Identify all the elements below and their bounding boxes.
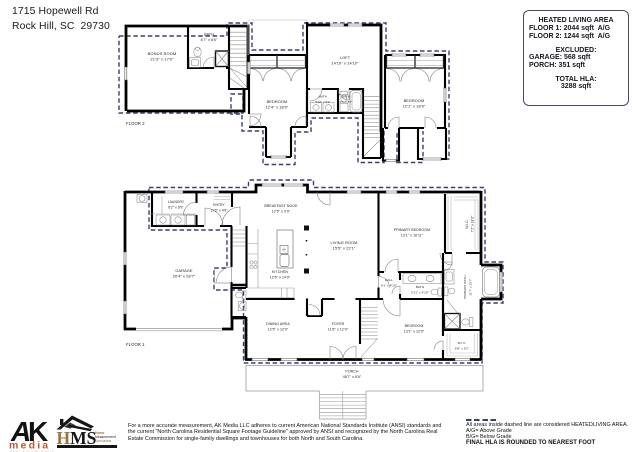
svg-text:14'10" x 14'10": 14'10" x 14'10" <box>331 61 359 66</box>
svg-text:BEDROOM: BEDROOM <box>267 99 288 104</box>
svg-text:12'1" x 18'9": 12'1" x 18'9" <box>403 104 426 109</box>
svg-text:Specialists: Specialists <box>95 439 112 443</box>
svg-text:BREAKFAST NOOK: BREAKFAST NOOK <box>264 204 298 208</box>
svg-text:48'7" x 8'6": 48'7" x 8'6" <box>343 375 362 379</box>
svg-text:12'4" x 18'9": 12'4" x 18'9" <box>266 105 289 110</box>
svg-text:W.I.C.: W.I.C. <box>465 219 469 228</box>
svg-text:LIVING ROOM: LIVING ROOM <box>330 240 357 245</box>
svg-text:15'5" x 22'1": 15'5" x 22'1" <box>333 246 356 251</box>
svg-text:FLOOR 1: FLOOR 1 <box>126 342 145 347</box>
svg-text:7'2" x 11'0": 7'2" x 11'0" <box>471 216 475 233</box>
svg-text:PORCH: PORCH <box>345 370 359 374</box>
svg-text:BEDROOM: BEDROOM <box>405 324 424 328</box>
svg-text:12'5" x 12'9": 12'5" x 12'9" <box>268 328 289 332</box>
svg-text:13'1" x 12'9": 13'1" x 12'9" <box>404 330 425 334</box>
svg-text:5'10" x 6'2": 5'10" x 6'2" <box>316 100 331 104</box>
svg-text:PRIMARY BATH: PRIMARY BATH <box>463 275 467 298</box>
svg-text:W.I.C.: W.I.C. <box>458 341 467 345</box>
svg-text:FOYER: FOYER <box>332 322 345 326</box>
svg-text:ENTRY: ENTRY <box>213 203 225 207</box>
svg-text:12'5" x 14'9": 12'5" x 14'9" <box>270 276 291 280</box>
svg-text:GARAGE: GARAGE <box>175 268 193 273</box>
svg-text:BATH: BATH <box>416 285 424 289</box>
svg-text:KITCHEN: KITCHEN <box>272 270 288 274</box>
svg-text:12'5" x 9'9": 12'5" x 9'9" <box>272 210 291 214</box>
svg-text:LAUNDRY: LAUNDRY <box>168 200 185 204</box>
svg-text:BEDROOM: BEDROOM <box>404 98 425 103</box>
svg-text:BONUS ROOM: BONUS ROOM <box>148 51 177 56</box>
svg-text:FLOOR 2: FLOOR 2 <box>126 121 145 126</box>
svg-text:BATH: BATH <box>204 33 214 37</box>
svg-text:PRIMARY BEDROOM: PRIMARY BEDROOM <box>394 228 430 232</box>
svg-text:20'4" x 28'7": 20'4" x 28'7" <box>173 274 196 279</box>
svg-text:DINING AREA: DINING AREA <box>266 322 290 326</box>
svg-text:6'7" x 8'6": 6'7" x 8'6" <box>201 38 218 42</box>
svg-text:BATH: BATH <box>342 95 350 99</box>
svg-text:11'0" x 4'9": 11'0" x 4'9" <box>210 209 228 213</box>
svg-text:21'3" x 17'0": 21'3" x 17'0" <box>150 57 174 62</box>
svg-text:9'1" x 4'10": 9'1" x 4'10" <box>381 284 397 288</box>
svg-text:5'11" x 4'10": 5'11" x 4'10" <box>411 291 429 295</box>
svg-text:HALL: HALL <box>385 278 393 282</box>
svg-text:11'7" x 10'7": 11'7" x 10'7" <box>469 278 473 296</box>
svg-text:8'2" x 6'9": 8'2" x 6'9" <box>168 206 184 210</box>
svg-text:LOFT: LOFT <box>340 55 351 60</box>
svg-text:6'8" x 6'2": 6'8" x 6'2" <box>455 347 469 351</box>
svg-text:BATH: BATH <box>319 95 327 99</box>
svg-text:11'8" x 12'9": 11'8" x 12'9" <box>328 328 349 332</box>
svg-text:5'7" x 8'7": 5'7" x 8'7" <box>339 100 352 104</box>
svg-text:13'1" x 16'11": 13'1" x 16'11" <box>401 234 424 238</box>
